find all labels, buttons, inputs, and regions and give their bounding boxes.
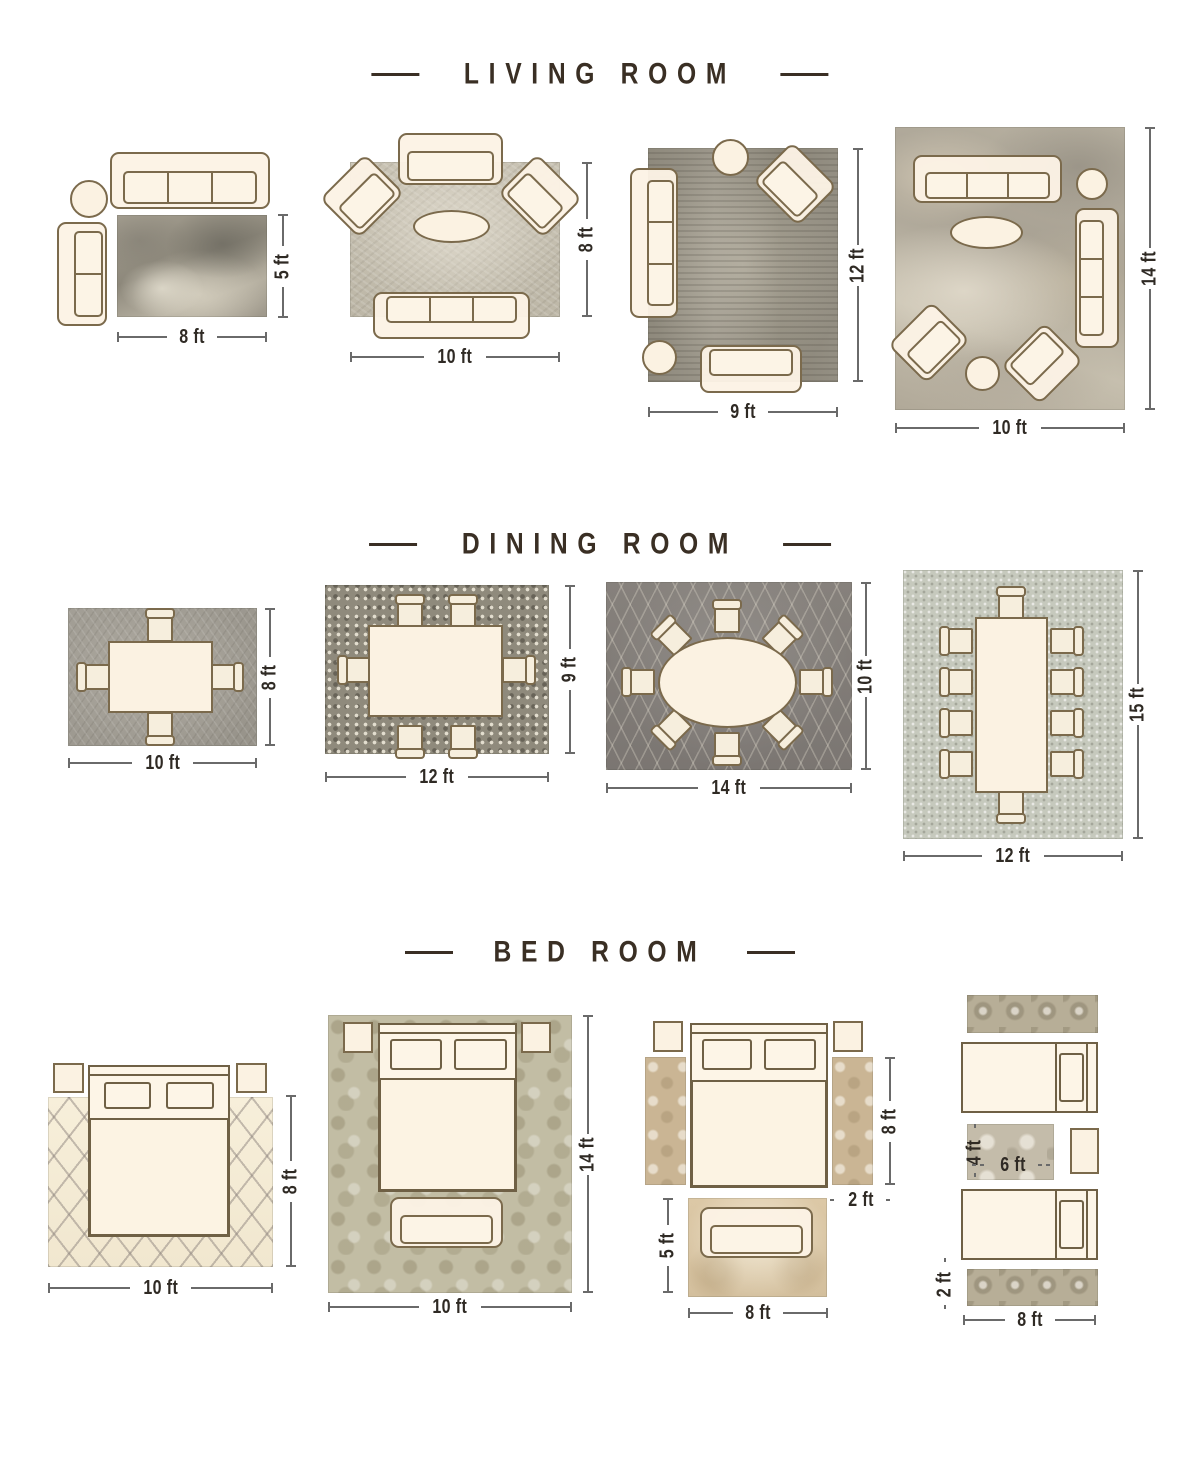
dim-height: 9 ft [552,585,588,754]
dim-height-label: 10 ft [846,659,887,694]
pillow [454,1039,507,1070]
bed [690,1023,828,1188]
blanket-edge [1055,1191,1057,1258]
dim-runner-width: 8 ft [963,1305,1096,1335]
round-ottoman [965,356,1000,391]
sofa-three-seat [373,292,530,339]
round-side-table [1076,168,1108,200]
nightstand [343,1022,373,1053]
loveseat [700,345,802,393]
section-title: DINING ROOM [462,527,738,561]
dining-chair [943,669,973,695]
dining-chair [397,598,423,628]
dining-table [368,625,503,717]
dining-chair [80,664,110,690]
dim-height-label: 8 ft [271,1168,312,1194]
dim-width: 8 ft [117,322,267,352]
dim-height: 15 ft [1120,570,1156,839]
dim-height: 8 ft [252,608,288,746]
dim-width-label: 9 ft [723,401,763,424]
nightstand [653,1021,683,1052]
dim-height-label: 8 ft [250,664,291,690]
sofa-cushions [647,180,674,306]
dim-width: 12 ft [903,841,1123,871]
loveseat [398,133,503,185]
dining-chair [502,657,532,683]
headboard [380,1025,515,1034]
dim-foot-rug-width: 8 ft [688,1298,828,1328]
dining-chair [998,790,1024,820]
sofa-three-seat-vertical [1075,208,1119,348]
dim-runner-height: 2 ft [927,1258,963,1310]
rug-8x5 [117,215,267,317]
dim-runner-width-label: 2 ft [841,1189,881,1212]
sofa-cushions [925,172,1050,199]
chaise-cushions [74,231,103,317]
loveseat-cushion [709,349,793,376]
section-title: LIVING ROOM [464,57,736,91]
dim-width: 14 ft [606,773,852,803]
dining-chair [210,664,240,690]
headboard [1086,1191,1096,1258]
dining-chair [450,598,476,628]
dining-chair [1050,628,1080,654]
dining-chair [943,751,973,777]
title-dash-left [371,73,419,76]
round-side-table [712,139,749,176]
bench-cushion [710,1225,804,1254]
dim-width: 12 ft [325,762,549,792]
runner-rug-top [967,995,1098,1033]
dining-chair [147,612,173,642]
headboard [692,1025,826,1034]
dining-table [975,617,1048,793]
dining-chair [998,590,1024,620]
dim-runner-length: 8 ft [872,1057,908,1185]
pillow [104,1082,151,1109]
dim-width-label: 12 ft [412,766,461,789]
dining-chair [450,725,476,755]
dim-width: 10 ft [328,1292,572,1322]
bench [700,1207,813,1258]
sofa-cushions [386,296,518,323]
section-header-living-room: LIVING ROOM [371,58,828,90]
pillow [764,1039,816,1070]
dining-table-oval [658,637,797,728]
title-dash-right [747,951,795,954]
bench [390,1197,503,1248]
dining-chair [625,669,655,695]
duvet [691,1080,827,1187]
dim-width-label: 8 ft [172,326,212,349]
title-dash-right [781,73,829,76]
twin-bed [961,1042,1098,1113]
dim-height: 12 ft [840,148,876,382]
sofa-cushions [1079,220,1104,337]
dim-height: 8 ft [569,162,605,317]
dim-height: 8 ft [273,1095,309,1267]
dim-width-label: 10 ft [138,752,187,775]
nightstand [1070,1128,1099,1174]
section-header-bed-room: BED ROOM [405,936,795,968]
dim-height-label: 15 ft [1118,687,1159,722]
nightstand [236,1063,267,1093]
dining-chair [1050,669,1080,695]
sofa-cushions [123,171,257,204]
sofa-three-seat [110,152,270,209]
dim-height: 14 ft [1132,127,1168,410]
nightstand [833,1021,863,1052]
nightstand [53,1063,84,1093]
bed [88,1065,230,1237]
pillow [390,1039,442,1070]
pillow [702,1039,752,1070]
dim-width-label: 10 ft [136,1277,185,1300]
dim-width: 10 ft [68,748,257,778]
dim-width-label: 12 ft [988,845,1037,868]
dim-accent-rug-width-label: 6 ft [993,1154,1033,1177]
round-side-table [70,180,108,218]
pillow [1059,1053,1084,1102]
dim-height-label: 14 ft [568,1137,609,1172]
bench-cushion [400,1215,494,1244]
title-dash-left [369,543,417,546]
sofa-three-seat [913,155,1062,203]
duvet [89,1118,229,1236]
dim-width-label: 14 ft [704,777,753,800]
dim-height: 14 ft [570,1015,606,1293]
dim-height-label: 9 ft [550,657,591,683]
title-dash-left [405,951,453,954]
round-ottoman [642,340,677,375]
dim-height: 10 ft [848,582,884,770]
section-title: BED ROOM [494,935,707,969]
dining-table [108,641,213,713]
blanket-edge [1055,1044,1057,1111]
section-header-dining-room: DINING ROOM [369,528,831,560]
pillow [1059,1200,1084,1249]
dining-chair [341,657,371,683]
dining-chair [1050,710,1080,736]
dim-height: 5 ft [265,214,301,318]
dim-width: 10 ft [48,1273,273,1303]
headboard [90,1067,228,1076]
dim-width-label: 10 ft [985,417,1034,440]
dining-chair [943,710,973,736]
dim-accent-rug-width: 6 ft [972,1150,1054,1180]
coffee-table-oval [950,216,1023,249]
nightstand [521,1022,551,1053]
headboard [1086,1044,1096,1111]
dim-height-label: 8 ft [567,227,608,253]
runner-rug-bottom [967,1269,1098,1306]
dim-height-label: 14 ft [1130,251,1171,286]
dim-runner-width: 2 ft [830,1185,892,1215]
dim-runner-width-label: 8 ft [1010,1309,1050,1332]
dim-foot-rug-height: 5 ft [650,1198,686,1293]
sofa-three-seat-vertical [630,168,678,318]
dim-height-label: 12 ft [838,248,879,283]
dim-width: 10 ft [350,342,560,372]
dining-chair [943,628,973,654]
dining-chair [799,669,829,695]
dining-chair [147,712,173,742]
bed [378,1023,517,1192]
dining-chair [714,732,740,762]
runner-rug-right [832,1057,873,1185]
twin-bed [961,1189,1098,1260]
duvet [379,1078,516,1191]
dim-width-label: 10 ft [425,1296,474,1319]
dining-chair [714,603,740,633]
title-dash-right [783,543,831,546]
dining-chair [1050,751,1080,777]
dim-foot-rug-height-label: 5 ft [648,1233,689,1259]
dim-runner-length-label: 8 ft [870,1108,911,1134]
rug-size-guide: LIVING ROOM DINING ROOM BED ROOM 8 ft 5 … [0,0,1200,1467]
dim-width-label: 10 ft [430,346,479,369]
loveseat-cushion [407,151,494,181]
dim-runner-height-label: 2 ft [925,1271,966,1297]
runner-rug-left [645,1057,686,1185]
coffee-table-oval [413,210,490,243]
pillow [166,1082,214,1109]
dim-width: 9 ft [648,397,838,427]
dim-height-label: 5 ft [263,253,304,279]
dim-foot-rug-width-label: 8 ft [738,1302,778,1325]
dining-chair [397,725,423,755]
chaise [57,222,107,326]
dim-width: 10 ft [895,413,1125,443]
